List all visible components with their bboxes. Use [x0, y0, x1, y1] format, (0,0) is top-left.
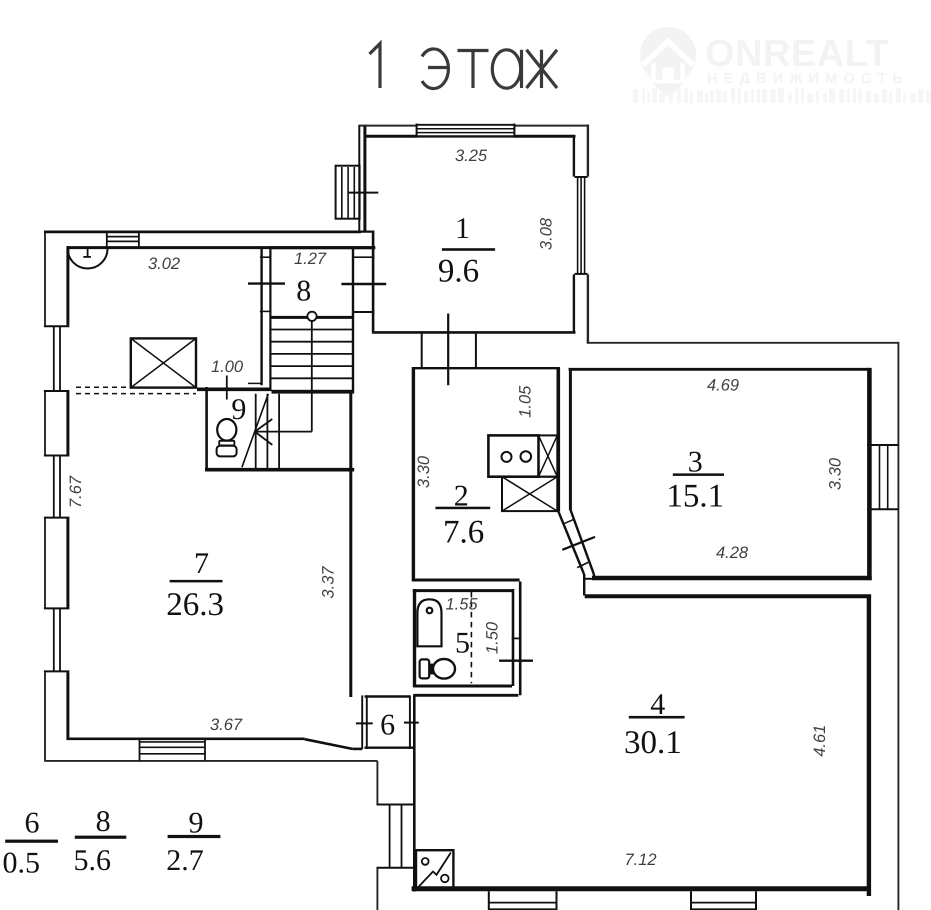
- svg-text:1.00: 1.00: [211, 358, 244, 376]
- svg-text:15.1: 15.1: [666, 479, 724, 515]
- svg-text:7.12: 7.12: [624, 851, 656, 869]
- svg-text:1.55: 1.55: [445, 596, 478, 614]
- svg-text:3.30: 3.30: [827, 457, 845, 490]
- svg-text:ONREALT: ONREALT: [705, 33, 889, 75]
- svg-text:4: 4: [650, 688, 665, 721]
- svg-text:1.27: 1.27: [294, 250, 327, 268]
- svg-text:30.1: 30.1: [624, 725, 682, 761]
- svg-text:8: 8: [96, 805, 111, 838]
- svg-text:7.67: 7.67: [67, 475, 85, 508]
- svg-text:6: 6: [380, 708, 395, 741]
- svg-text:8: 8: [296, 274, 311, 307]
- svg-text:3.67: 3.67: [210, 716, 243, 734]
- svg-text:9.6: 9.6: [438, 254, 479, 290]
- svg-text:1.50: 1.50: [483, 621, 501, 654]
- svg-text:5.6: 5.6: [73, 844, 111, 877]
- svg-text:26.3: 26.3: [166, 587, 224, 623]
- svg-text:1.05: 1.05: [517, 385, 535, 418]
- svg-text:3.37: 3.37: [320, 566, 338, 599]
- svg-text:4.61: 4.61: [811, 725, 829, 757]
- svg-text:4.69: 4.69: [707, 377, 739, 395]
- svg-text:7: 7: [194, 547, 209, 580]
- svg-text:3.30: 3.30: [415, 455, 433, 488]
- svg-text:9: 9: [189, 807, 204, 840]
- svg-text:7.6: 7.6: [443, 515, 484, 551]
- svg-text:6: 6: [25, 807, 40, 840]
- svg-text:4.28: 4.28: [716, 544, 749, 562]
- svg-text:3.02: 3.02: [148, 255, 180, 273]
- svg-text:1: 1: [455, 212, 470, 245]
- svg-text:3.25: 3.25: [455, 147, 488, 165]
- svg-text:НЕДВИЖИМОСТЬ: НЕДВИЖИМОСТЬ: [707, 71, 909, 87]
- svg-text:2.7: 2.7: [166, 844, 204, 877]
- svg-text:0.5: 0.5: [3, 847, 41, 880]
- svg-text:3.08: 3.08: [538, 217, 556, 250]
- svg-text:5: 5: [455, 626, 470, 659]
